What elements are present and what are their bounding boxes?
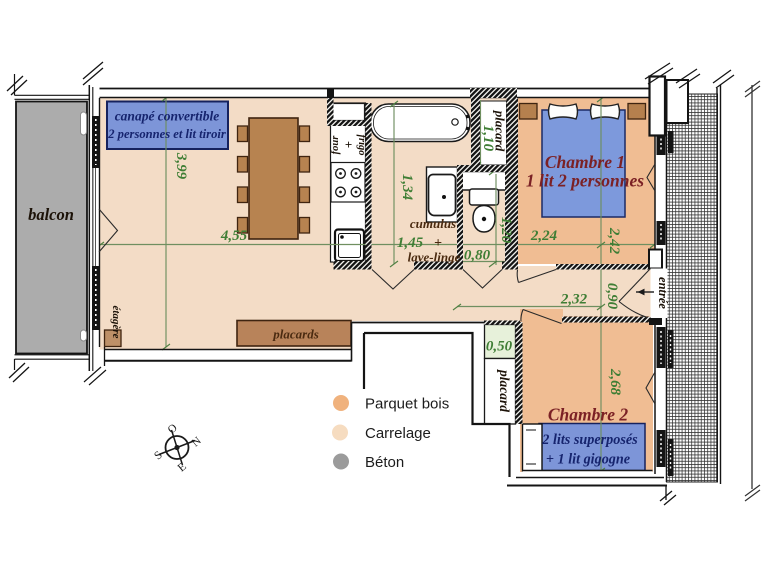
svg-text:entrée: entrée xyxy=(656,277,670,309)
svg-text:2,68: 2,68 xyxy=(607,368,623,396)
svg-text:0,50: 0,50 xyxy=(486,339,513,355)
svg-text:+: + xyxy=(345,137,352,152)
svg-text:2,24: 2,24 xyxy=(530,228,558,244)
svg-text:+ 1 lit gigogne: + 1 lit gigogne xyxy=(546,452,630,468)
svg-text:four: four xyxy=(330,135,341,155)
svg-text:lave-linge: lave-linge xyxy=(408,250,461,265)
svg-text:0,90: 0,90 xyxy=(604,283,620,310)
svg-text:Chambre 1: Chambre 1 xyxy=(545,152,625,172)
svg-text:2 personnes et lit tiroir: 2 personnes et lit tiroir xyxy=(107,127,226,141)
svg-text:1,34: 1,34 xyxy=(399,174,415,201)
svg-text:placards: placards xyxy=(272,327,319,342)
svg-text:1 lit 2 personnes: 1 lit 2 personnes xyxy=(526,171,644,191)
svg-text:Carrelage: Carrelage xyxy=(365,425,431,442)
svg-text:1,20: 1,20 xyxy=(498,217,514,244)
svg-text:balcon: balcon xyxy=(28,205,74,224)
svg-text:0,80: 0,80 xyxy=(464,248,491,264)
svg-text:2 lits superposés: 2 lits superposés xyxy=(541,432,638,448)
svg-text:étagère: étagère xyxy=(110,306,122,339)
svg-text:1,10: 1,10 xyxy=(480,125,496,152)
svg-text:Béton: Béton xyxy=(365,454,404,471)
svg-text:1,45: 1,45 xyxy=(397,235,424,251)
svg-text:4,55: 4,55 xyxy=(220,228,248,244)
svg-text:Chambre 2: Chambre 2 xyxy=(548,405,628,425)
svg-text:cumulus: cumulus xyxy=(410,216,456,231)
svg-text:3,99: 3,99 xyxy=(173,152,189,180)
svg-text:canapé convertible: canapé convertible xyxy=(115,109,220,124)
svg-text:Parquet bois: Parquet bois xyxy=(365,396,449,413)
svg-text:placard: placard xyxy=(497,369,512,412)
svg-text:2,42: 2,42 xyxy=(606,227,622,255)
svg-text:frigo: frigo xyxy=(356,135,367,156)
svg-text:2,32: 2,32 xyxy=(560,292,588,308)
